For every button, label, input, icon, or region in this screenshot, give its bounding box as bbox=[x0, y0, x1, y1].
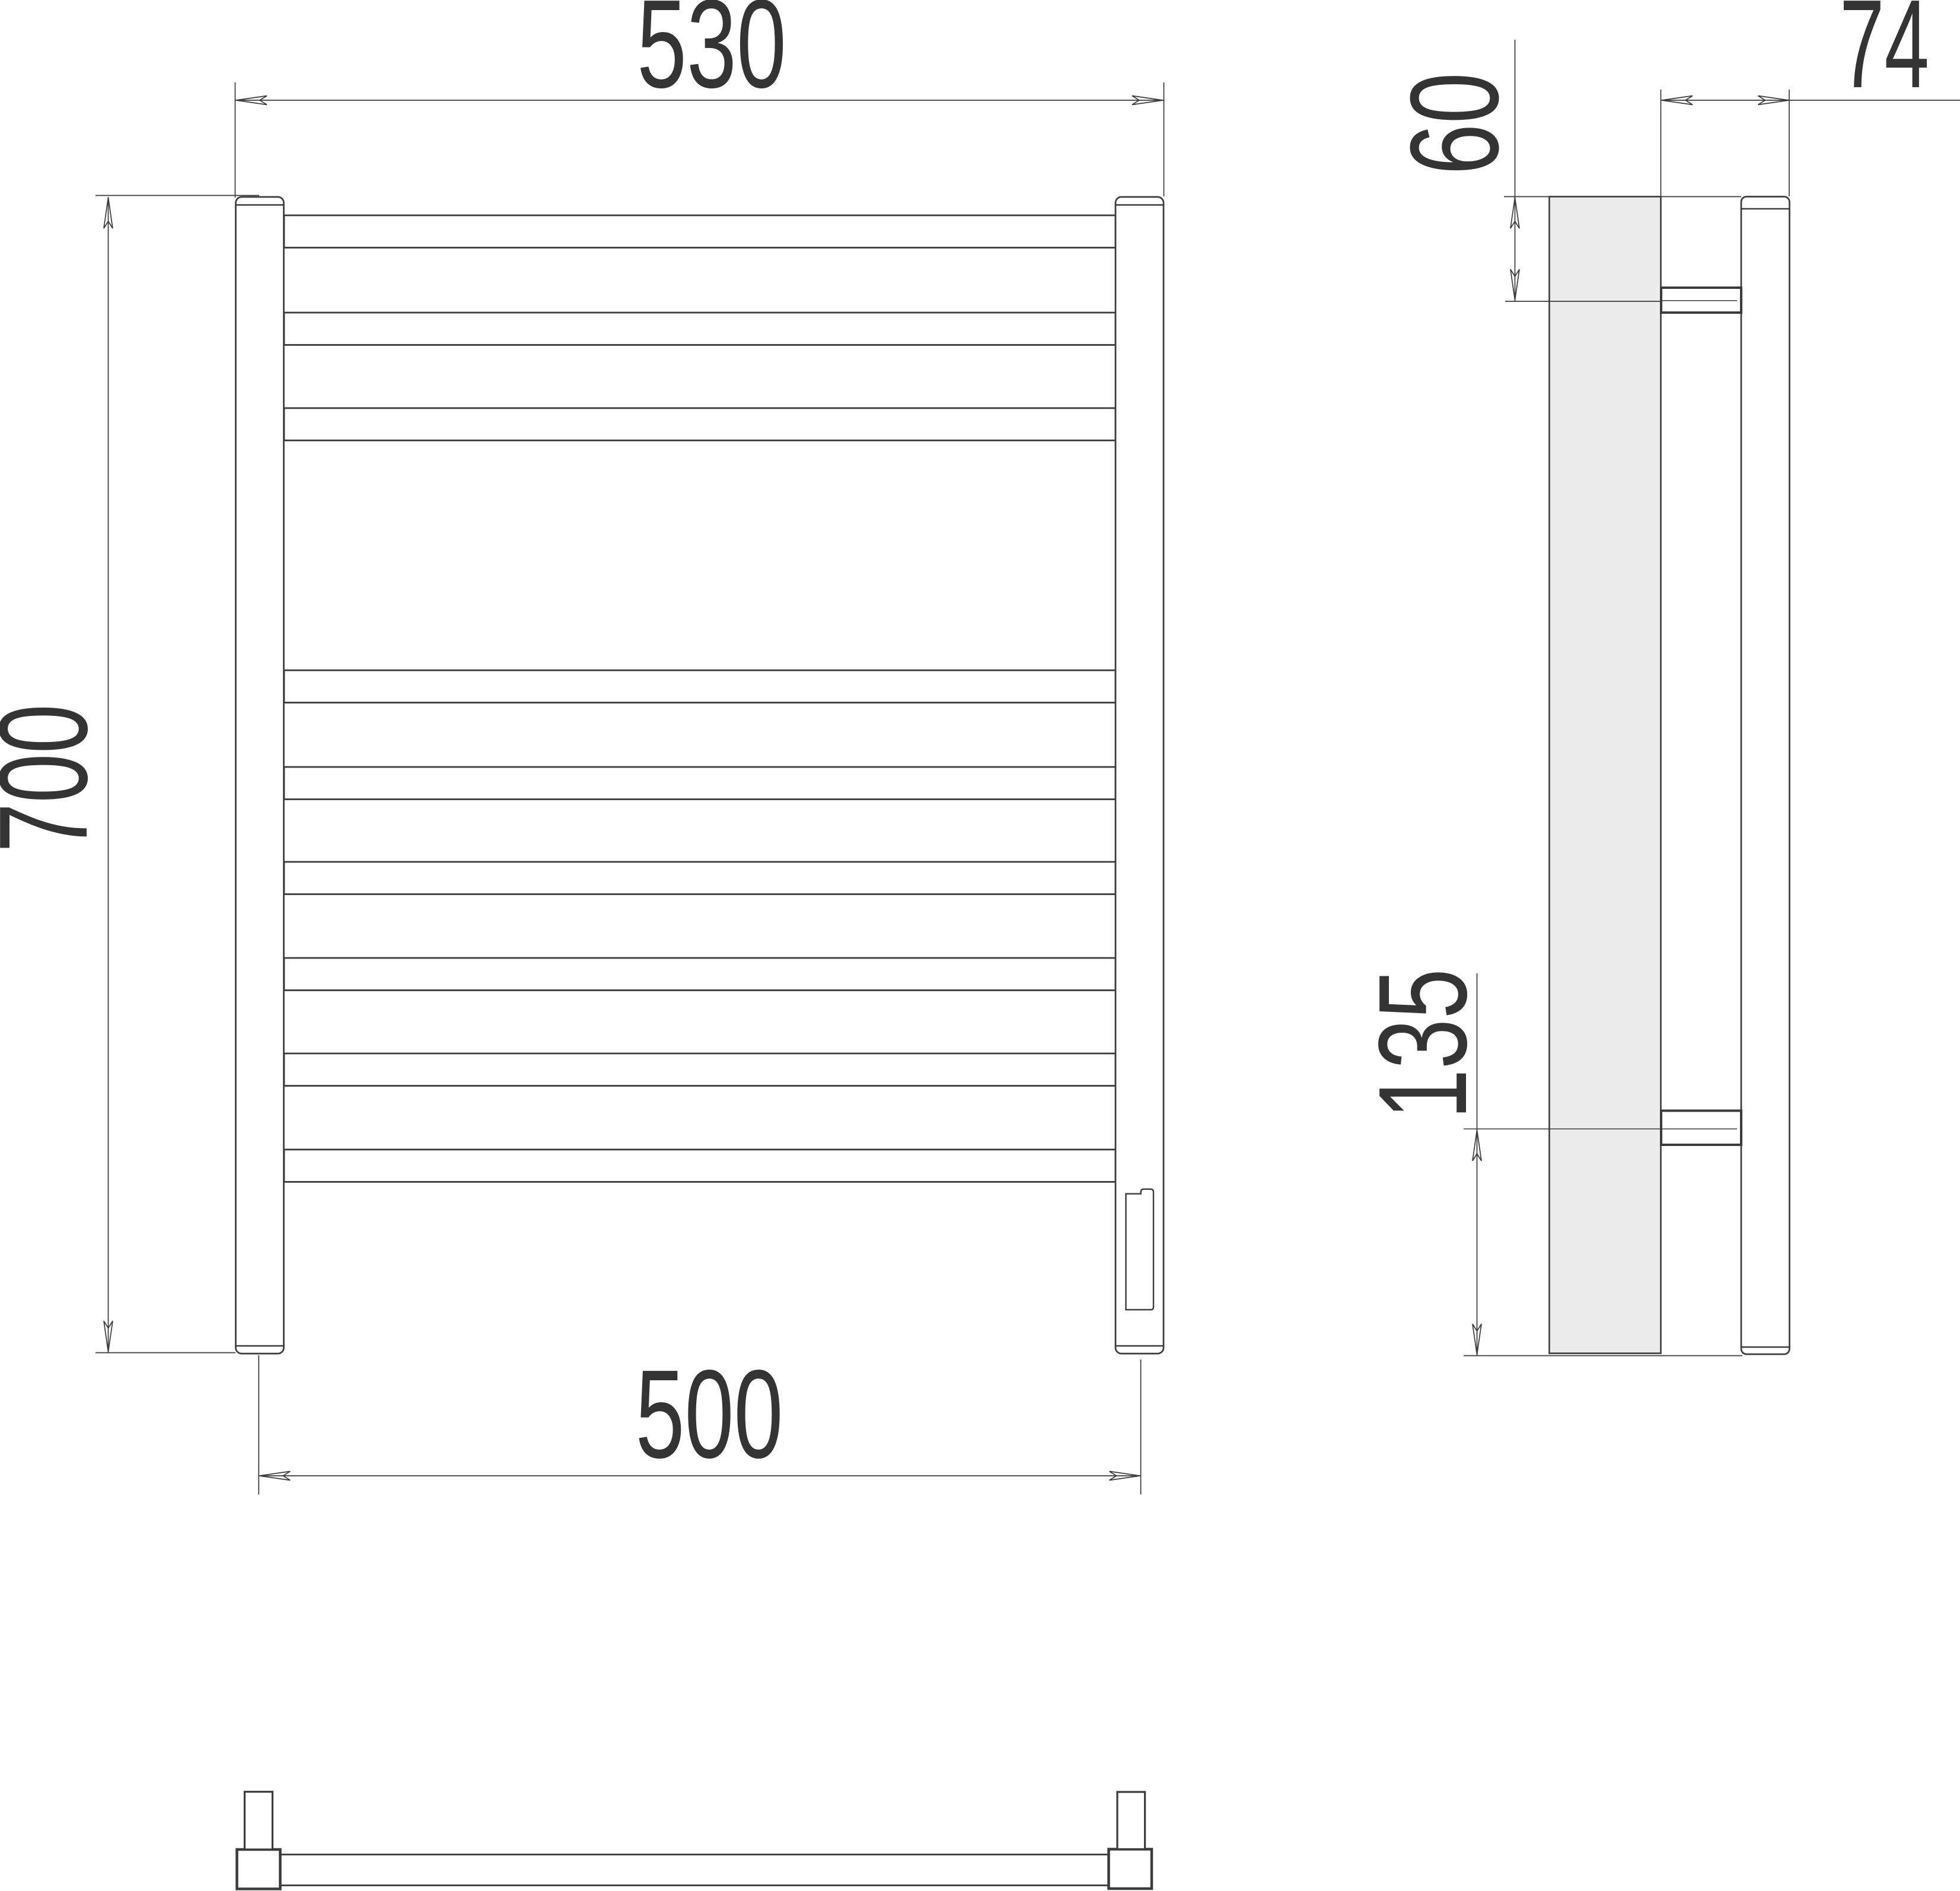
svg-text:500: 500 bbox=[636, 1344, 783, 1484]
svg-text:60: 60 bbox=[1384, 72, 1525, 175]
svg-text:74: 74 bbox=[1840, 0, 1929, 114]
svg-text:135: 135 bbox=[1352, 969, 1493, 1119]
svg-text:530: 530 bbox=[637, 0, 786, 114]
svg-text:700: 700 bbox=[0, 704, 113, 852]
